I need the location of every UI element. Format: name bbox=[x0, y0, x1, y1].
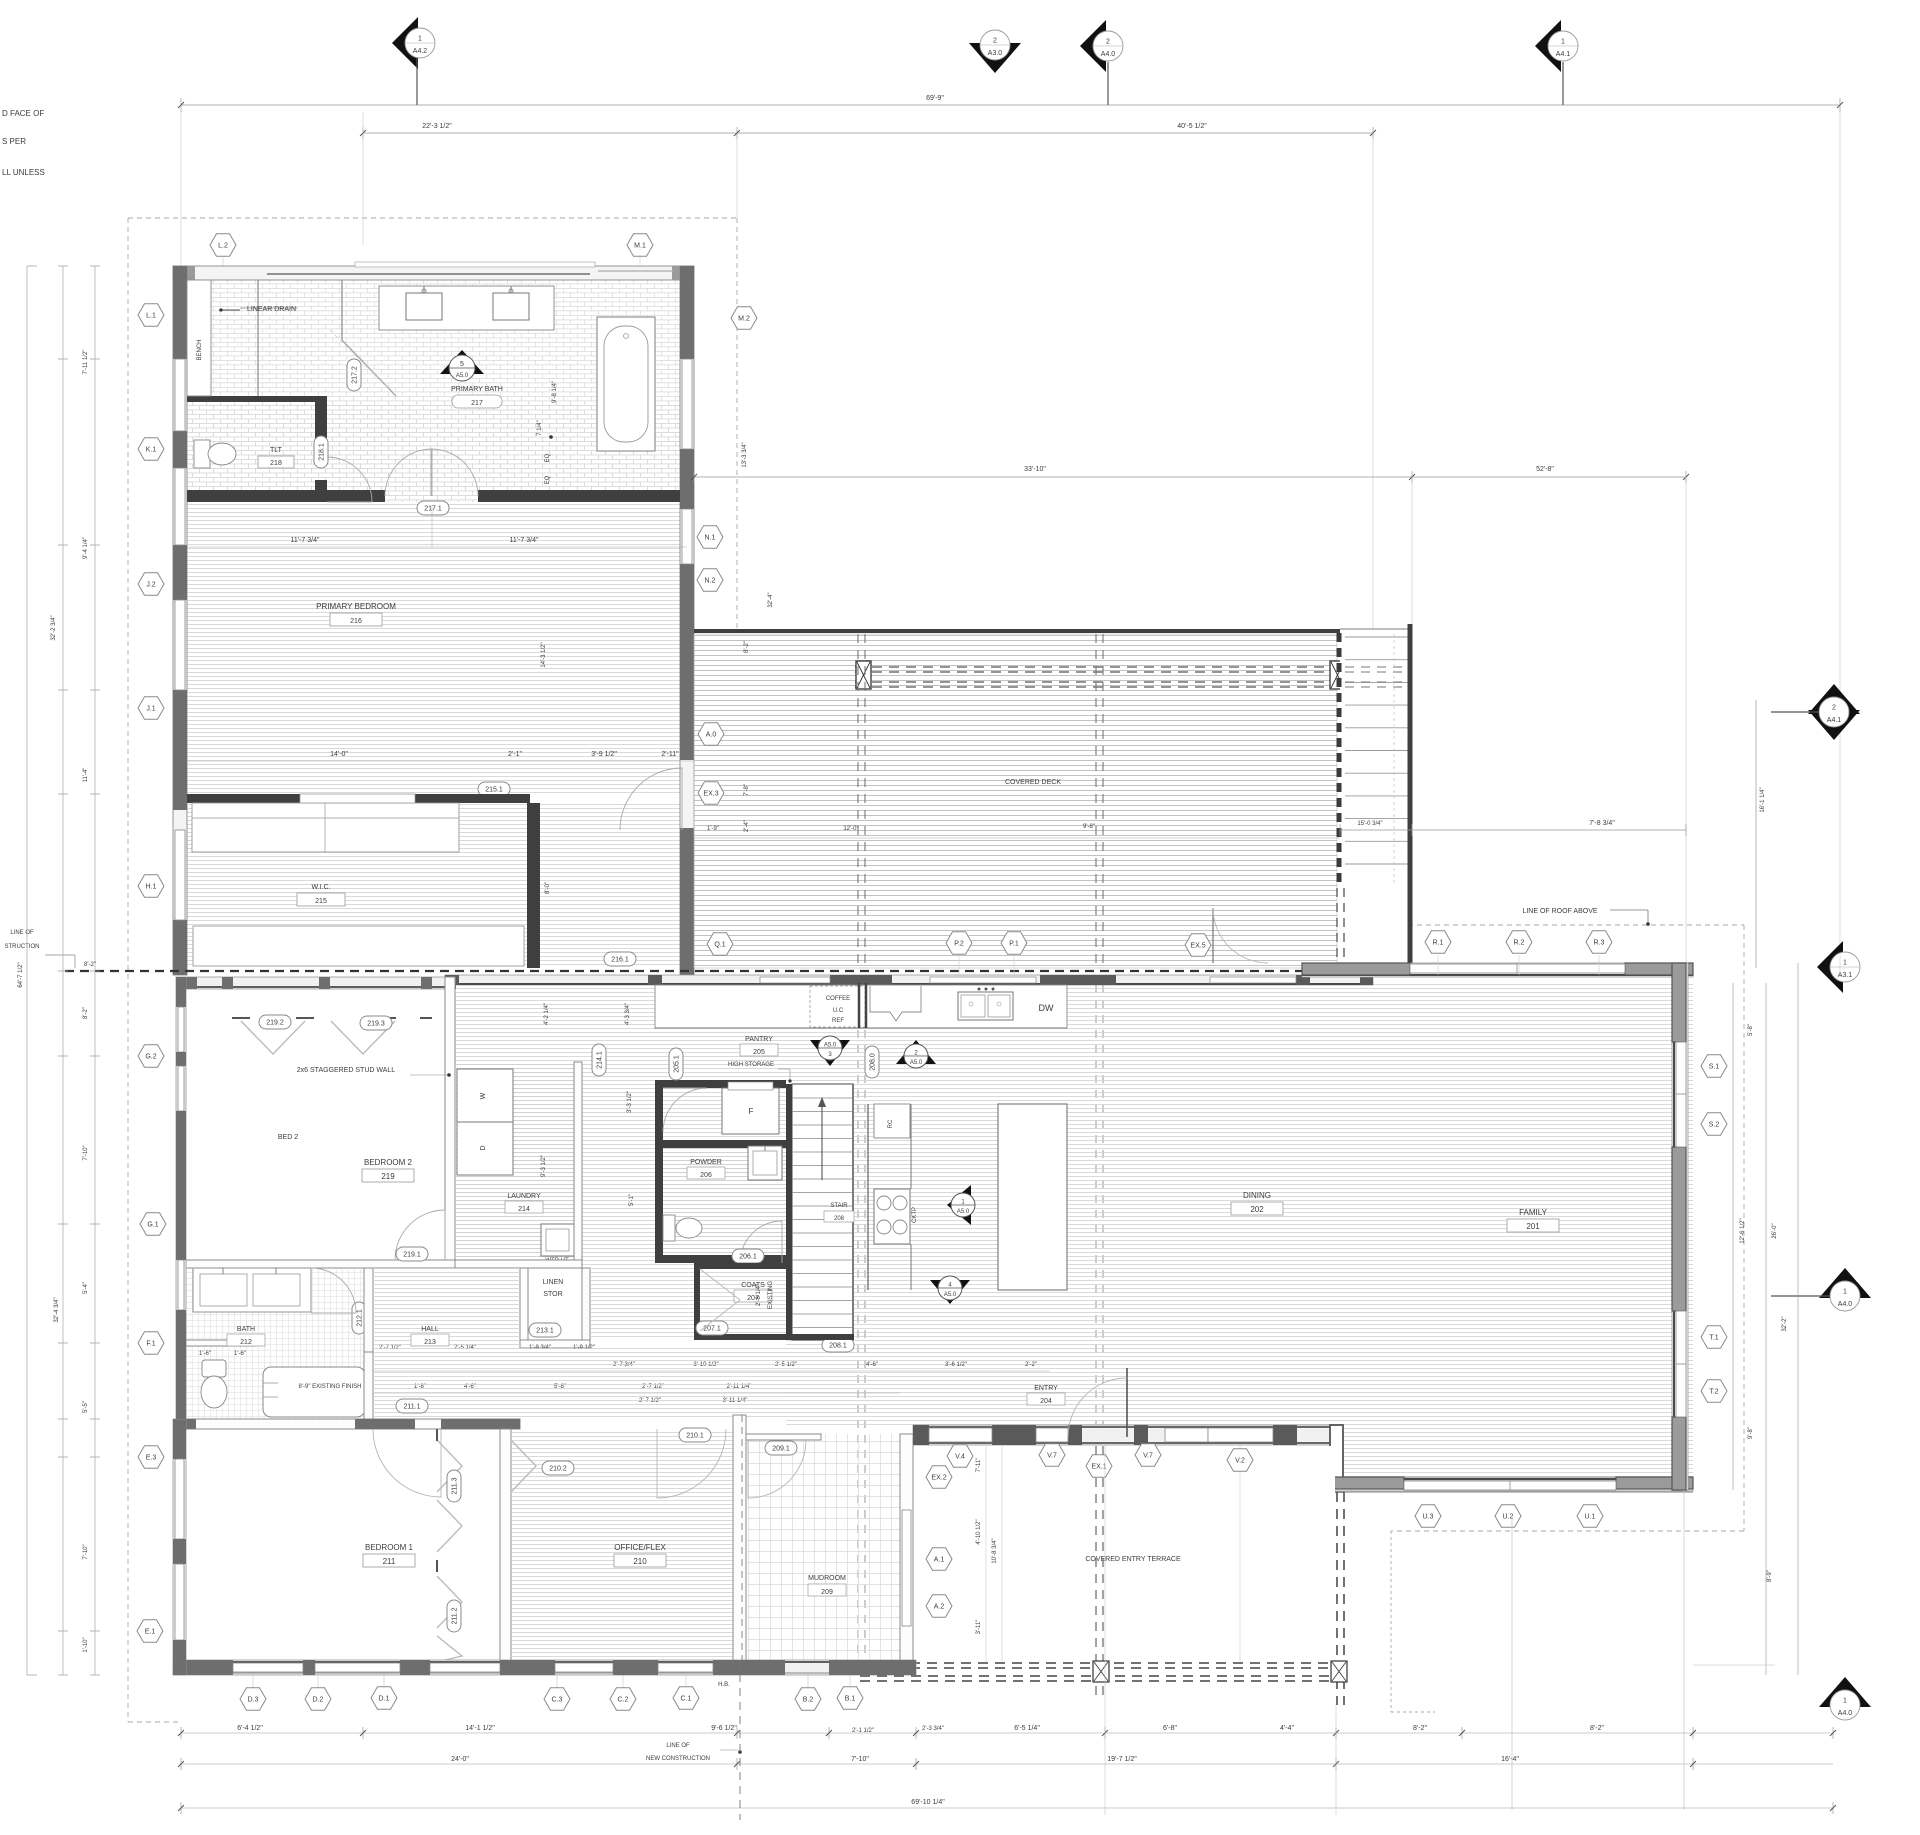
svg-text:EX.1: EX.1 bbox=[1091, 1464, 1106, 1471]
svg-text:J.2: J.2 bbox=[146, 582, 155, 589]
svg-text:CKTP: CKTP bbox=[912, 1207, 918, 1223]
svg-text:2'-8 1/4": 2'-8 1/4" bbox=[756, 1284, 762, 1306]
svg-text:210: 210 bbox=[633, 1557, 647, 1566]
svg-text:208.1: 208.1 bbox=[829, 1343, 847, 1350]
svg-text:HIGH STORAGE: HIGH STORAGE bbox=[728, 1062, 774, 1068]
svg-text:2'-3 3/4": 2'-3 3/4" bbox=[922, 1726, 944, 1732]
svg-text:BED 2: BED 2 bbox=[278, 1134, 298, 1141]
svg-text:204: 204 bbox=[1040, 1398, 1052, 1405]
svg-text:214.1: 214.1 bbox=[597, 1051, 604, 1069]
svg-text:206.1: 206.1 bbox=[739, 1254, 757, 1261]
svg-text:S.1: S.1 bbox=[1709, 1064, 1720, 1071]
svg-text:NEW CONSTRUCTION: NEW CONSTRUCTION bbox=[646, 1756, 710, 1762]
svg-text:LL UNLESS: LL UNLESS bbox=[2, 168, 45, 177]
svg-text:206: 206 bbox=[700, 1172, 712, 1179]
svg-text:A.2: A.2 bbox=[934, 1604, 945, 1611]
svg-text:D.2: D.2 bbox=[313, 1697, 324, 1704]
svg-text:FAMILY: FAMILY bbox=[1519, 1208, 1548, 1217]
svg-text:LINE OF: LINE OF bbox=[10, 930, 34, 936]
svg-text:7 1/4": 7 1/4" bbox=[537, 420, 543, 435]
svg-text:4'-3 3/4": 4'-3 3/4" bbox=[625, 1003, 631, 1025]
svg-text:P.2: P.2 bbox=[954, 941, 964, 948]
svg-text:G.2: G.2 bbox=[145, 1054, 156, 1061]
svg-text:COFFEE: COFFEE bbox=[826, 996, 850, 1002]
svg-text:4'-4": 4'-4" bbox=[1280, 1725, 1294, 1732]
svg-text:219.2: 219.2 bbox=[266, 1020, 284, 1027]
svg-text:COVERED DECK: COVERED DECK bbox=[1005, 779, 1061, 786]
svg-text:4'-2 1/4": 4'-2 1/4" bbox=[544, 1003, 550, 1025]
svg-text:2x6 STAGGERED STUD WALL: 2x6 STAGGERED STUD WALL bbox=[297, 1067, 396, 1074]
svg-text:1: 1 bbox=[418, 36, 422, 43]
svg-text:S PER: S PER bbox=[2, 137, 26, 146]
svg-text:V.7: V.7 bbox=[1143, 1453, 1153, 1460]
svg-text:PRIMARY BATH: PRIMARY BATH bbox=[451, 386, 503, 393]
svg-text:212: 212 bbox=[240, 1339, 252, 1346]
svg-text:1: 1 bbox=[1561, 39, 1565, 46]
svg-text:R.3: R.3 bbox=[1594, 940, 1605, 947]
svg-text:Q.1: Q.1 bbox=[714, 942, 725, 949]
svg-text:7'-8": 7'-8" bbox=[744, 784, 750, 796]
svg-text:3'-3 1/2": 3'-3 1/2" bbox=[627, 1091, 633, 1113]
svg-text:LINEAR DRAIN: LINEAR DRAIN bbox=[247, 306, 296, 313]
svg-text:L.2: L.2 bbox=[218, 243, 228, 250]
svg-text:BATH: BATH bbox=[237, 1326, 255, 1333]
svg-text:2'-2": 2'-2" bbox=[1025, 1362, 1037, 1368]
svg-text:211.1: 211.1 bbox=[404, 1404, 421, 1411]
svg-text:A5.0: A5.0 bbox=[824, 1043, 837, 1049]
svg-text:H.1: H.1 bbox=[146, 884, 157, 891]
svg-text:14'-1 1/2": 14'-1 1/2" bbox=[465, 1725, 495, 1732]
svg-text:RC: RC bbox=[888, 1119, 894, 1128]
svg-text:211.3: 211.3 bbox=[452, 1477, 459, 1494]
svg-text:MUDROOM: MUDROOM bbox=[808, 1575, 846, 1582]
svg-text:5'-1": 5'-1" bbox=[629, 1194, 635, 1206]
svg-text:6'-4 1/2": 6'-4 1/2" bbox=[237, 1725, 263, 1732]
svg-text:LINE OF ROOF ABOVE: LINE OF ROOF ABOVE bbox=[1522, 908, 1597, 915]
svg-text:L.1: L.1 bbox=[146, 313, 156, 320]
svg-text:32'-4": 32'-4" bbox=[768, 592, 774, 607]
svg-text:A4.2: A4.2 bbox=[413, 48, 428, 55]
svg-text:1'-6": 1'-6" bbox=[234, 1351, 246, 1357]
svg-text:V.7: V.7 bbox=[1047, 1453, 1057, 1460]
svg-text:219: 219 bbox=[381, 1172, 395, 1181]
svg-text:209: 209 bbox=[821, 1589, 833, 1596]
svg-text:7'-11 1/2": 7'-11 1/2" bbox=[83, 350, 89, 375]
svg-text:LINE OF: LINE OF bbox=[666, 1743, 690, 1749]
svg-text:W.I.C.: W.I.C. bbox=[311, 884, 330, 891]
svg-text:EX.5: EX.5 bbox=[1190, 943, 1205, 950]
svg-text:8'-2": 8'-2" bbox=[83, 1007, 89, 1019]
svg-text:8'-9": 8'-9" bbox=[1767, 1570, 1773, 1582]
svg-text:208: 208 bbox=[834, 1216, 845, 1222]
svg-text:B.2: B.2 bbox=[803, 1697, 814, 1704]
svg-text:EQ: EQ bbox=[545, 453, 551, 462]
svg-text:A.1: A.1 bbox=[934, 1557, 945, 1564]
svg-text:202: 202 bbox=[1250, 1205, 1264, 1214]
svg-text:205: 205 bbox=[753, 1049, 765, 1056]
svg-text:210.2: 210.2 bbox=[549, 1466, 567, 1473]
svg-text:10'-8 3/4": 10'-8 3/4" bbox=[992, 1538, 998, 1563]
svg-text:E.1: E.1 bbox=[145, 1629, 156, 1636]
svg-text:201: 201 bbox=[1526, 1222, 1540, 1231]
svg-text:219.3: 219.3 bbox=[367, 1021, 385, 1028]
svg-text:LINEN: LINEN bbox=[543, 1279, 564, 1286]
svg-text:15'-0 3/4": 15'-0 3/4" bbox=[1357, 821, 1382, 827]
svg-text:T.1: T.1 bbox=[1709, 1335, 1718, 1342]
svg-text:26'-0": 26'-0" bbox=[1772, 1223, 1778, 1238]
svg-text:8'-2": 8'-2" bbox=[84, 962, 96, 968]
svg-text:EX.2: EX.2 bbox=[931, 1475, 946, 1482]
svg-text:EQ: EQ bbox=[545, 475, 551, 484]
svg-text:M.1: M.1 bbox=[634, 243, 646, 250]
svg-text:217.2: 217.2 bbox=[352, 366, 359, 384]
svg-text:F.1: F.1 bbox=[146, 1341, 155, 1348]
svg-text:STRUCTION: STRUCTION bbox=[5, 944, 40, 950]
svg-text:215: 215 bbox=[315, 898, 327, 905]
svg-text:A5.0: A5.0 bbox=[456, 373, 469, 379]
svg-text:2'-11": 2'-11" bbox=[661, 751, 679, 758]
svg-text:P.1: P.1 bbox=[1009, 941, 1019, 948]
svg-text:212.1: 212.1 bbox=[357, 1309, 364, 1327]
svg-text:215.1: 215.1 bbox=[485, 787, 503, 794]
svg-text:M.2: M.2 bbox=[738, 316, 750, 323]
svg-text:C.1: C.1 bbox=[681, 1696, 692, 1703]
svg-text:7'-8 3/4": 7'-8 3/4" bbox=[1589, 820, 1615, 827]
svg-text:B.1: B.1 bbox=[845, 1696, 856, 1703]
svg-text:D: D bbox=[480, 1145, 487, 1150]
svg-text:11'-7 3/4": 11'-7 3/4" bbox=[291, 537, 321, 544]
svg-text:C.3: C.3 bbox=[552, 1697, 563, 1704]
svg-text:218: 218 bbox=[270, 460, 282, 467]
svg-text:C.2: C.2 bbox=[618, 1697, 629, 1704]
svg-text:W: W bbox=[480, 1092, 487, 1099]
svg-text:11'-4": 11'-4" bbox=[83, 768, 89, 783]
svg-text:R.2: R.2 bbox=[1514, 940, 1525, 947]
svg-text:14'-0": 14'-0" bbox=[330, 751, 348, 758]
svg-text:D.1: D.1 bbox=[379, 1696, 390, 1703]
svg-text:N.2: N.2 bbox=[705, 578, 716, 585]
svg-text:8'-2": 8'-2" bbox=[744, 641, 750, 653]
svg-text:4'-6": 4'-6" bbox=[866, 1362, 878, 1368]
svg-text:19'-7 1/2": 19'-7 1/2" bbox=[1107, 1756, 1137, 1763]
svg-text:ENTRY: ENTRY bbox=[1034, 1385, 1058, 1392]
svg-text:N.1: N.1 bbox=[705, 535, 716, 542]
svg-text:TLT: TLT bbox=[270, 447, 283, 454]
svg-text:A4.0: A4.0 bbox=[1838, 1301, 1853, 1308]
svg-text:A.0: A.0 bbox=[706, 732, 717, 739]
svg-text:1: 1 bbox=[1843, 1289, 1847, 1296]
svg-text:A4.1: A4.1 bbox=[1556, 51, 1571, 58]
svg-text:219.1: 219.1 bbox=[403, 1252, 421, 1259]
svg-text:1'-9": 1'-9" bbox=[707, 826, 719, 832]
svg-text:R.1: R.1 bbox=[1433, 940, 1444, 947]
svg-text:205.1: 205.1 bbox=[674, 1055, 681, 1073]
svg-text:2: 2 bbox=[1832, 705, 1836, 712]
svg-text:40'-5 1/2": 40'-5 1/2" bbox=[1177, 123, 1207, 130]
svg-text:U.1: U.1 bbox=[1585, 1514, 1596, 1521]
svg-text:11'-7 3/4": 11'-7 3/4" bbox=[510, 537, 540, 544]
svg-text:8'-0": 8'-0" bbox=[545, 882, 551, 894]
svg-text:211.2: 211.2 bbox=[452, 1607, 459, 1624]
svg-text:REF: REF bbox=[832, 1018, 844, 1024]
svg-text:A5.0: A5.0 bbox=[910, 1060, 923, 1066]
svg-text:BENCH: BENCH bbox=[197, 339, 203, 360]
svg-text:9'-8": 9'-8" bbox=[1748, 1427, 1754, 1439]
svg-text:7'-10": 7'-10" bbox=[851, 1756, 869, 1763]
svg-text:A4.0: A4.0 bbox=[1838, 1710, 1853, 1717]
svg-text:6'-5 1/4": 6'-5 1/4" bbox=[1014, 1725, 1040, 1732]
svg-text:8'-9" EXISTING FINISH: 8'-9" EXISTING FINISH bbox=[299, 1384, 362, 1390]
svg-text:PANTRY: PANTRY bbox=[745, 1036, 773, 1043]
svg-text:14'-3 1/2": 14'-3 1/2" bbox=[541, 642, 547, 667]
svg-text:69'-10 1/4": 69'-10 1/4" bbox=[911, 1799, 945, 1806]
svg-text:A4.0: A4.0 bbox=[1101, 51, 1116, 58]
svg-text:V.2: V.2 bbox=[1235, 1458, 1245, 1465]
svg-text:DW: DW bbox=[1039, 1003, 1054, 1013]
svg-text:9'-6 1/2": 9'-6 1/2" bbox=[711, 1725, 737, 1732]
svg-text:COVERED ENTRY TERRACE: COVERED ENTRY TERRACE bbox=[1085, 1556, 1181, 1563]
svg-text:V.4: V.4 bbox=[955, 1454, 965, 1461]
svg-text:33'-10": 33'-10" bbox=[1024, 466, 1046, 473]
svg-text:213: 213 bbox=[424, 1339, 436, 1346]
svg-text:210.1: 210.1 bbox=[686, 1433, 704, 1440]
svg-text:13'-3 3/4": 13'-3 3/4" bbox=[742, 442, 748, 467]
svg-text:69'-9": 69'-9" bbox=[926, 95, 944, 102]
svg-text:A4.1: A4.1 bbox=[1827, 717, 1842, 724]
svg-text:5: 5 bbox=[460, 361, 464, 368]
svg-text:32'-2 3/4": 32'-2 3/4" bbox=[51, 615, 57, 640]
svg-text:T.2: T.2 bbox=[1709, 1389, 1718, 1396]
svg-text:2'-1 1/2": 2'-1 1/2" bbox=[852, 1728, 874, 1734]
svg-text:211: 211 bbox=[383, 1557, 396, 1566]
svg-text:DINING: DINING bbox=[1243, 1191, 1271, 1200]
svg-text:F: F bbox=[749, 1107, 754, 1116]
svg-text:209.1: 209.1 bbox=[772, 1446, 790, 1453]
svg-text:9'-8": 9'-8" bbox=[1083, 824, 1095, 830]
svg-text:S.2: S.2 bbox=[1709, 1122, 1720, 1129]
svg-text:16'-1 1/4": 16'-1 1/4" bbox=[1760, 787, 1766, 812]
svg-text:32'-2": 32'-2" bbox=[1782, 1316, 1788, 1331]
svg-text:2: 2 bbox=[1106, 39, 1110, 46]
svg-text:BEDROOM 1: BEDROOM 1 bbox=[365, 1543, 414, 1552]
svg-text:24'-0": 24'-0" bbox=[451, 1756, 469, 1763]
svg-text:8'-2": 8'-2" bbox=[1413, 1725, 1427, 1732]
svg-text:3'-11": 3'-11" bbox=[976, 1620, 982, 1635]
svg-text:2'-4": 2'-4" bbox=[744, 820, 750, 832]
svg-text:E.3: E.3 bbox=[146, 1455, 157, 1462]
svg-text:5'-8": 5'-8" bbox=[1748, 1024, 1754, 1036]
svg-text:214: 214 bbox=[518, 1206, 530, 1213]
svg-text:1'-10": 1'-10" bbox=[83, 1637, 89, 1652]
svg-text:STAIR: STAIR bbox=[830, 1203, 848, 1209]
svg-text:3'-6 1/2": 3'-6 1/2" bbox=[945, 1362, 967, 1368]
svg-text:5'-5": 5'-5" bbox=[83, 1401, 89, 1413]
svg-text:STOR: STOR bbox=[543, 1291, 562, 1298]
svg-text:208.0: 208.0 bbox=[870, 1053, 877, 1071]
svg-text:3'-9 1/2": 3'-9 1/2" bbox=[591, 751, 617, 758]
svg-text:8'-2": 8'-2" bbox=[1590, 1725, 1604, 1732]
svg-text:HALL: HALL bbox=[421, 1326, 439, 1333]
svg-text:7'-10": 7'-10" bbox=[83, 1145, 89, 1160]
svg-text:5'-4": 5'-4" bbox=[83, 1282, 89, 1294]
svg-text:6'-8": 6'-8" bbox=[1163, 1725, 1177, 1732]
svg-text:K.1: K.1 bbox=[146, 447, 157, 454]
svg-text:217: 217 bbox=[471, 400, 483, 407]
svg-text:A5.0: A5.0 bbox=[957, 1209, 970, 1215]
svg-text:7'-10": 7'-10" bbox=[83, 1544, 89, 1559]
svg-text:9'-8 1/4": 9'-8 1/4" bbox=[552, 381, 558, 403]
svg-text:64'-7 1/2": 64'-7 1/2" bbox=[18, 962, 24, 987]
svg-text:4'-10 1/2": 4'-10 1/2" bbox=[976, 1519, 982, 1544]
svg-text:A3.0: A3.0 bbox=[988, 50, 1003, 57]
svg-text:12'-0": 12'-0" bbox=[843, 826, 858, 832]
svg-text:PRIMARY BEDROOM: PRIMARY BEDROOM bbox=[316, 602, 396, 611]
svg-text:218.1: 218.1 bbox=[319, 443, 326, 461]
svg-text:LAUNDRY: LAUNDRY bbox=[507, 1193, 541, 1200]
svg-text:G.1: G.1 bbox=[147, 1222, 158, 1229]
svg-text:2'-1": 2'-1" bbox=[508, 751, 522, 758]
svg-text:U.3: U.3 bbox=[1423, 1514, 1434, 1521]
svg-text:1: 1 bbox=[1843, 960, 1847, 967]
svg-text:2: 2 bbox=[993, 38, 997, 45]
svg-text:U.C: U.C bbox=[833, 1008, 844, 1014]
svg-text:216: 216 bbox=[350, 618, 362, 625]
svg-text:1: 1 bbox=[1843, 1698, 1847, 1705]
svg-text:A5.0: A5.0 bbox=[944, 1292, 957, 1298]
svg-text:OFFICE/FLEX: OFFICE/FLEX bbox=[614, 1543, 666, 1552]
svg-text:7'-11": 7'-11" bbox=[976, 1458, 982, 1473]
svg-text:213.1: 213.1 bbox=[536, 1328, 554, 1335]
svg-text:1'-6": 1'-6" bbox=[199, 1351, 211, 1357]
svg-text:J.1: J.1 bbox=[146, 706, 155, 713]
svg-text:12'-6 1/2": 12'-6 1/2" bbox=[1740, 1218, 1746, 1243]
svg-text:EX.3: EX.3 bbox=[703, 791, 718, 798]
svg-text:EXISTING: EXISTING bbox=[768, 1281, 774, 1309]
svg-text:9'-3 1/2": 9'-3 1/2" bbox=[541, 1155, 547, 1177]
svg-text:POWDER: POWDER bbox=[690, 1159, 722, 1166]
svg-text:BEDROOM 2: BEDROOM 2 bbox=[364, 1158, 413, 1167]
svg-text:216.1: 216.1 bbox=[611, 957, 629, 964]
svg-text:16'-4": 16'-4" bbox=[1501, 1756, 1519, 1763]
svg-text:9'-4 1/4": 9'-4 1/4" bbox=[83, 537, 89, 559]
svg-text:D FACE OF: D FACE OF bbox=[2, 109, 44, 118]
svg-text:D.3: D.3 bbox=[248, 1697, 259, 1704]
svg-text:32'-4 3/4": 32'-4 3/4" bbox=[54, 1297, 60, 1322]
svg-text:52'-8": 52'-8" bbox=[1536, 466, 1554, 473]
svg-text:22'-3 1/2": 22'-3 1/2" bbox=[422, 123, 452, 130]
svg-text:217.1: 217.1 bbox=[424, 506, 442, 513]
svg-text:H.B.: H.B. bbox=[718, 1682, 730, 1688]
